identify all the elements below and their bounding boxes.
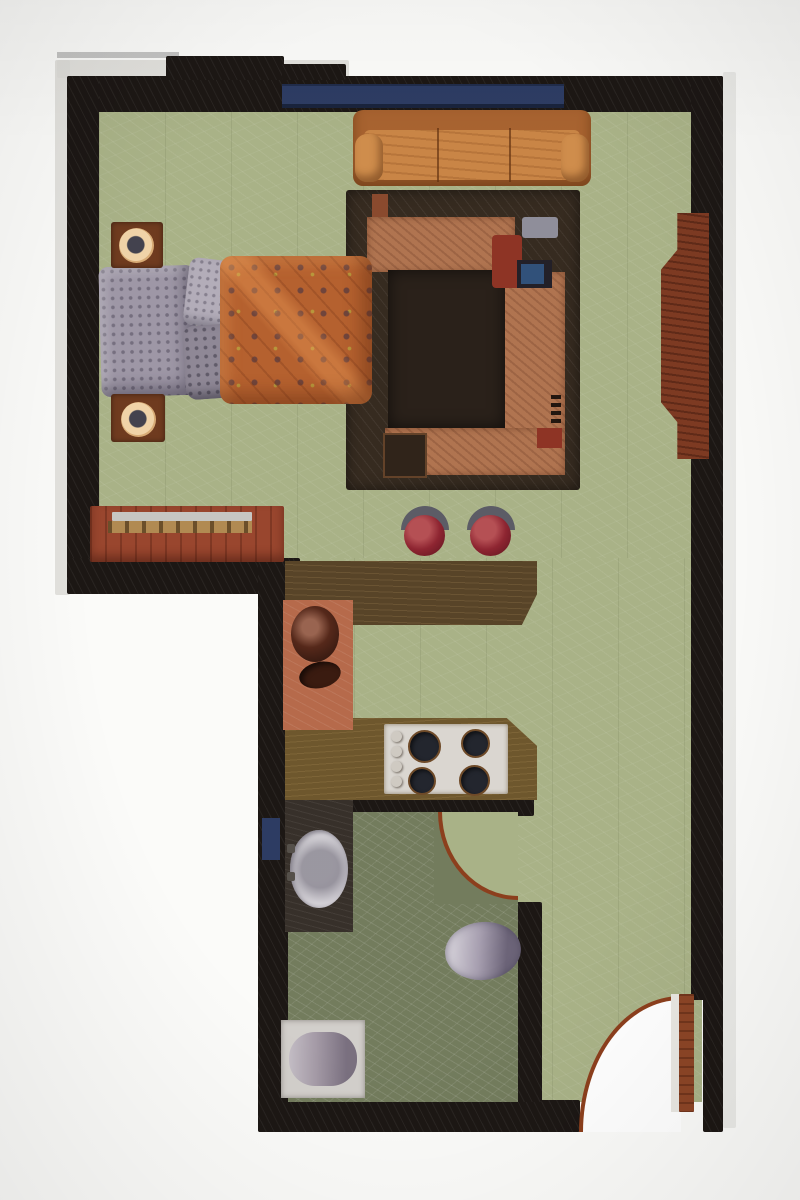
area-rug — [346, 190, 580, 490]
sofa-seat — [364, 130, 580, 180]
window-band — [282, 84, 564, 108]
cooktop-burner — [408, 730, 441, 763]
floor-plan-photo: Studio apartment floor plan — illustrate… — [0, 0, 800, 1200]
cooktop — [384, 724, 508, 794]
cooktop-knob — [391, 761, 402, 772]
vanity-basin — [290, 830, 348, 908]
wall-bathroom-right — [516, 902, 542, 1102]
bathroom-vanity — [285, 800, 353, 932]
rug-fringe — [551, 395, 561, 425]
wall-bottom — [258, 1100, 580, 1132]
rug-inner-panel — [388, 270, 505, 428]
sofa-cushion-seam — [437, 128, 439, 182]
tv — [517, 260, 552, 288]
table-lamp — [119, 228, 154, 263]
red-accent — [537, 428, 562, 448]
faucet — [287, 844, 295, 853]
page-title: Studio apartment floor plan — illustrate… — [0, 21, 1, 22]
sofa-armrest — [561, 134, 589, 182]
table-lamp — [121, 402, 156, 437]
tv-screen — [521, 264, 544, 284]
sofa-cushion-seam — [509, 128, 511, 182]
dresser-trim — [108, 521, 252, 533]
bathroom-window — [262, 818, 280, 860]
cooktop-knob — [391, 731, 402, 742]
sofa — [353, 110, 591, 186]
cooktop-burner — [408, 767, 436, 795]
wall-top-step — [282, 64, 346, 80]
patterned-comforter — [220, 256, 372, 404]
double-bed — [100, 256, 372, 404]
wall-right-lower — [703, 996, 723, 1132]
kitchen-sink-counter — [283, 600, 353, 730]
dresser-top — [112, 512, 252, 521]
bathtub-basin — [289, 1032, 357, 1086]
paper-edge — [57, 52, 179, 58]
bar-stool — [396, 504, 454, 558]
cooktop-burner — [459, 765, 490, 796]
entry-door-edge — [671, 994, 679, 1112]
kitchen-sink-drain — [297, 658, 343, 692]
cooktop-knob — [391, 776, 402, 787]
sofa-armrest — [355, 134, 383, 182]
gray-console — [522, 217, 558, 238]
bathtub — [281, 1020, 365, 1098]
bar-stool — [462, 504, 520, 558]
wall-top-bump — [166, 56, 284, 80]
cooktop-knob — [391, 746, 402, 757]
bathroom-doorway — [434, 812, 518, 904]
faucet — [287, 872, 295, 881]
cooktop-burner — [461, 729, 490, 758]
paper-edge — [723, 72, 736, 1128]
entry-door-leaf — [679, 994, 694, 1112]
side-table — [383, 433, 427, 478]
dresser — [90, 506, 284, 562]
kitchen-sink-bowl — [291, 606, 339, 662]
bathroom-door-swing-arc — [438, 812, 518, 900]
stool-seat — [404, 515, 445, 556]
stool-seat — [470, 515, 511, 556]
